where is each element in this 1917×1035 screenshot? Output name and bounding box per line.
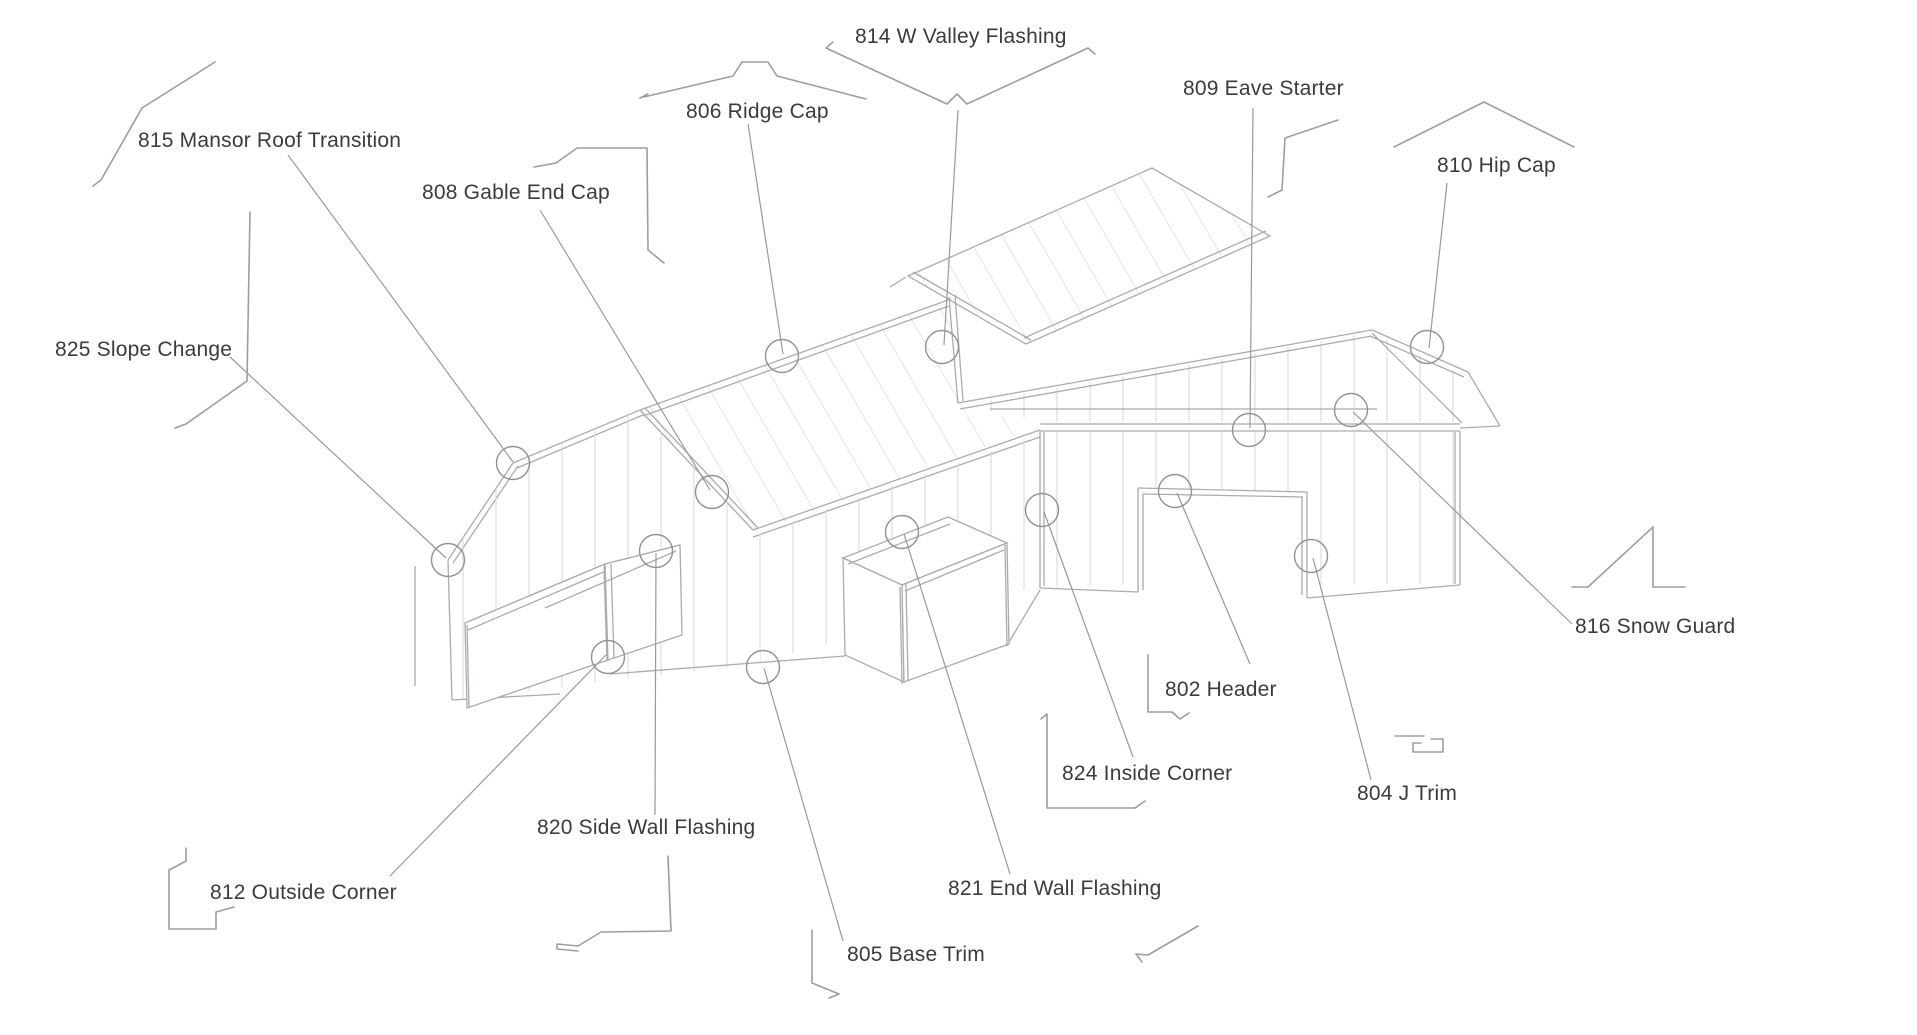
label-802-header: 802 Header <box>1165 678 1277 702</box>
gable-end-cap-profile-icon <box>534 148 664 263</box>
label-810-hip-cap: 810 Hip Cap <box>1437 154 1556 178</box>
valley-flashing-profile-icon <box>826 42 1095 104</box>
label-821-end-wall-flashing: 821 End Wall Flashing <box>948 877 1162 901</box>
right-wing <box>958 330 1500 598</box>
label-825-slope-change: 825 Slope Change <box>55 338 232 362</box>
hip-cap-profile-icon <box>1394 102 1574 147</box>
label-820-side-wall-flashing: 820 Side Wall Flashing <box>537 816 755 840</box>
eave-starter-profile-icon <box>1268 120 1338 197</box>
label-816-snow-guard: 816 Snow Guard <box>1575 615 1735 639</box>
mansard-transition-profile-icon <box>93 62 215 186</box>
diagram-canvas: 802 Header 804 J Trim 805 Base Trim 806 … <box>0 0 1917 1035</box>
j-trim-profile-icon <box>1395 736 1443 752</box>
label-814-valley-flashing: 814 W Valley Flashing <box>855 25 1067 49</box>
leader-805-base-trim <box>764 668 843 941</box>
snow-guard-profile-icon <box>1572 527 1685 587</box>
door-opening <box>1138 488 1307 598</box>
base-trim-profile-icon <box>812 930 839 998</box>
label-815-mansard-transition: 815 Mansor Roof Transition <box>138 129 401 153</box>
leader-825-slope-change <box>230 357 446 558</box>
end-wall-flashing-profile-icon <box>1136 926 1198 962</box>
leader-810-hip-cap <box>1429 183 1447 348</box>
label-804-j-trim: 804 J Trim <box>1357 782 1457 806</box>
label-806-ridge-cap: 806 Ridge Cap <box>686 100 829 124</box>
ridge-cap-profile-icon <box>640 62 866 99</box>
leader-806-ridge-cap <box>748 124 783 354</box>
building-line-art <box>415 168 1500 708</box>
label-808-gable-end-cap: 808 Gable End Cap <box>422 181 610 205</box>
leader-804-j-trim <box>1313 558 1371 780</box>
label-805-base-trim: 805 Base Trim <box>847 943 985 967</box>
label-809-eave-starter: 809 Eave Starter <box>1183 77 1344 101</box>
slope-change-profile-icon <box>175 212 250 428</box>
label-824-inside-corner: 824 Inside Corner <box>1062 762 1232 786</box>
side-wall-flashing-profile-icon <box>557 856 671 951</box>
inside-corner-profile-icon <box>1041 714 1145 808</box>
label-812-outside-corner: 812 Outside Corner <box>210 881 397 905</box>
